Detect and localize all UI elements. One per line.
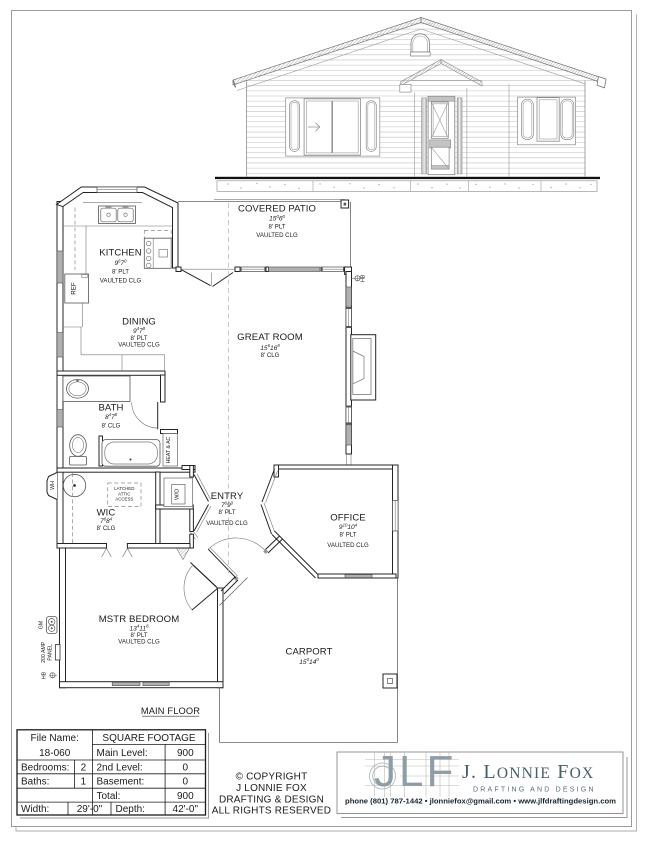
svg-text:8' PLT: 8' PLT <box>112 269 129 276</box>
svg-text:OFFICE: OFFICE <box>330 513 365 524</box>
svg-text:phone (801) 787-1442 • jlonnie: phone (801) 787-1442 • jlonniefox@gmail.… <box>345 796 616 805</box>
svg-text:File Name:: File Name: <box>31 733 79 744</box>
svg-text:8' CLG: 8' CLG <box>102 422 121 429</box>
svg-text:DRAFTING AND DESIGN: DRAFTING AND DESIGN <box>473 787 596 794</box>
svg-text:GREAT ROOM: GREAT ROOM <box>237 332 303 343</box>
svg-text:Width:: Width: <box>21 804 49 815</box>
svg-text:900: 900 <box>177 791 194 802</box>
svg-text:200 AMP: 200 AMP <box>41 641 47 663</box>
svg-text:0: 0 <box>183 762 189 773</box>
svg-text:42'-0": 42'-0" <box>173 804 199 815</box>
svg-text:ACCESS: ACCESS <box>115 497 133 502</box>
svg-text:VAULTED CLG: VAULTED CLG <box>256 232 298 239</box>
svg-text:156168: 156168 <box>260 343 280 352</box>
svg-text:CARPORT: CARPORT <box>286 647 333 658</box>
svg-text:WIC: WIC <box>97 508 116 519</box>
svg-text:VAULTED CLG: VAULTED CLG <box>327 542 369 549</box>
svg-text:Depth:: Depth: <box>116 804 145 815</box>
svg-text:HB: HB <box>361 274 367 282</box>
svg-text:2: 2 <box>81 762 87 773</box>
svg-text:© COPYRIGHT: © COPYRIGHT <box>236 772 308 783</box>
svg-text:1: 1 <box>81 777 87 788</box>
svg-text:ALL RIGHTS RESERVED: ALL RIGHTS RESERVED <box>212 806 331 817</box>
svg-text:J. LONNIE FOX: J. LONNIE FOX <box>462 761 594 783</box>
svg-text:0: 0 <box>183 777 189 788</box>
svg-text:Baths:: Baths: <box>21 777 49 788</box>
svg-text:DRAFTING & DESIGN: DRAFTING & DESIGN <box>219 794 324 805</box>
svg-text:VAULTED CLG: VAULTED CLG <box>100 278 142 285</box>
svg-text:2nd Level:: 2nd Level: <box>97 762 143 773</box>
svg-text:ENTRY: ENTRY <box>211 491 244 502</box>
svg-text:Total:: Total: <box>97 791 121 802</box>
svg-text:8' PLT: 8' PLT <box>269 224 286 231</box>
svg-text:PANEL: PANEL <box>48 644 54 661</box>
svg-text:MAIN FLOOR: MAIN FLOOR <box>141 706 200 716</box>
svg-text:VAULTED CLG: VAULTED CLG <box>118 639 160 646</box>
svg-text:Main Level:: Main Level: <box>97 748 148 759</box>
svg-text:29'-0": 29'-0" <box>77 804 103 815</box>
svg-text:COVERED PATIO: COVERED PATIO <box>238 204 316 215</box>
svg-text:Bedrooms:: Bedrooms: <box>21 762 69 773</box>
svg-text:KITCHEN: KITCHEN <box>99 248 141 259</box>
svg-text:J LONNIE FOX: J LONNIE FOX <box>236 783 307 794</box>
svg-text:ATTIC: ATTIC <box>118 491 130 496</box>
svg-text:HEAT & AC: HEAT & AC <box>166 436 172 463</box>
svg-text:VAULTED CLG: VAULTED CLG <box>118 341 160 348</box>
svg-text:8' PLT: 8' PLT <box>219 509 236 516</box>
svg-text:Basement:: Basement: <box>97 777 145 788</box>
svg-text:8' CLG: 8' CLG <box>261 352 280 359</box>
svg-text:W/D: W/D <box>174 489 180 500</box>
svg-text:VAULTED CLG: VAULTED CLG <box>206 520 248 527</box>
svg-text:150140: 150140 <box>299 657 319 666</box>
svg-text:DINING: DINING <box>122 317 156 328</box>
svg-text:JLF: JLF <box>374 747 456 796</box>
svg-text:REF: REF <box>71 282 78 295</box>
svg-text:LATCHED: LATCHED <box>114 486 134 491</box>
svg-text:HB: HB <box>42 671 48 679</box>
svg-text:SQUARE FOOTAGE: SQUARE FOOTAGE <box>102 733 195 744</box>
svg-text:8' CLG: 8' CLG <box>97 525 116 532</box>
svg-text:WH: WH <box>50 481 56 490</box>
svg-text:18-060: 18-060 <box>39 748 71 759</box>
svg-text:BATH: BATH <box>98 403 123 414</box>
svg-text:GM: GM <box>39 621 45 629</box>
svg-text:900: 900 <box>177 748 194 759</box>
svg-text:8' PLT: 8' PLT <box>340 532 357 539</box>
